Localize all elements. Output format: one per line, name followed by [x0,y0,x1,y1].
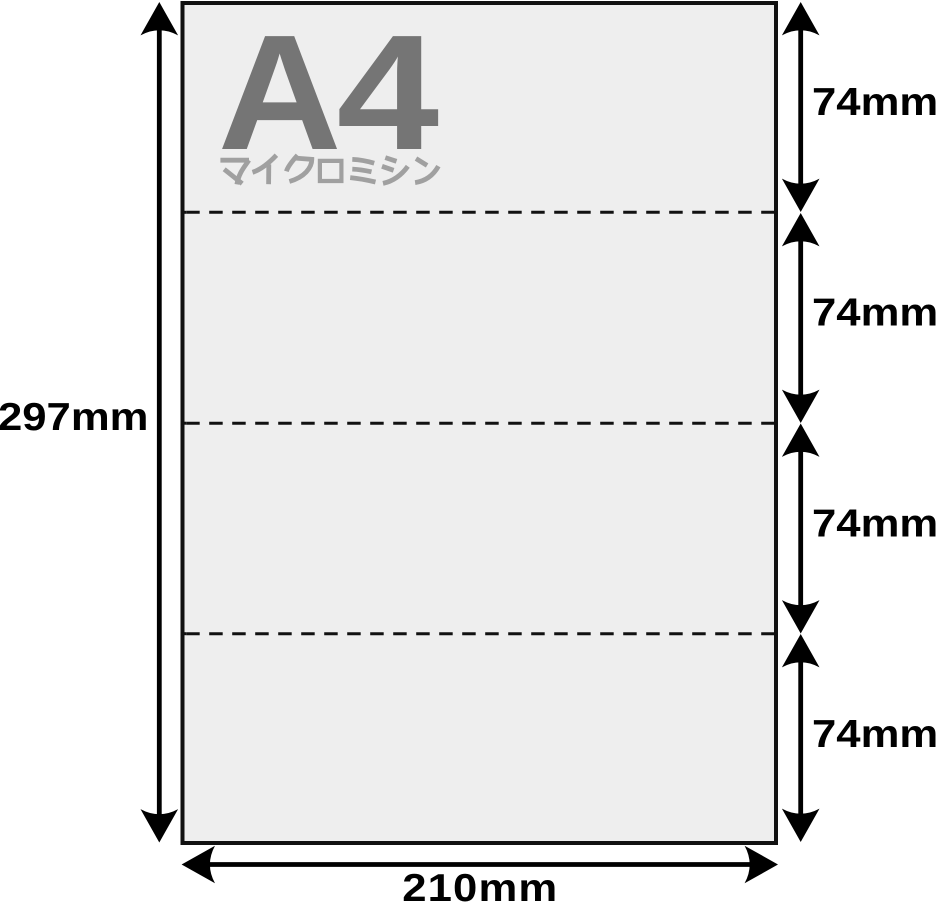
svg-text:74mm: 74mm [812,712,936,755]
svg-text:74mm: 74mm [812,80,936,123]
svg-text:210mm: 210mm [402,866,558,909]
svg-text:A: A [218,0,342,184]
svg-text:297mm: 297mm [0,395,148,438]
svg-text:74mm: 74mm [812,291,936,334]
svg-text:74mm: 74mm [812,502,936,545]
